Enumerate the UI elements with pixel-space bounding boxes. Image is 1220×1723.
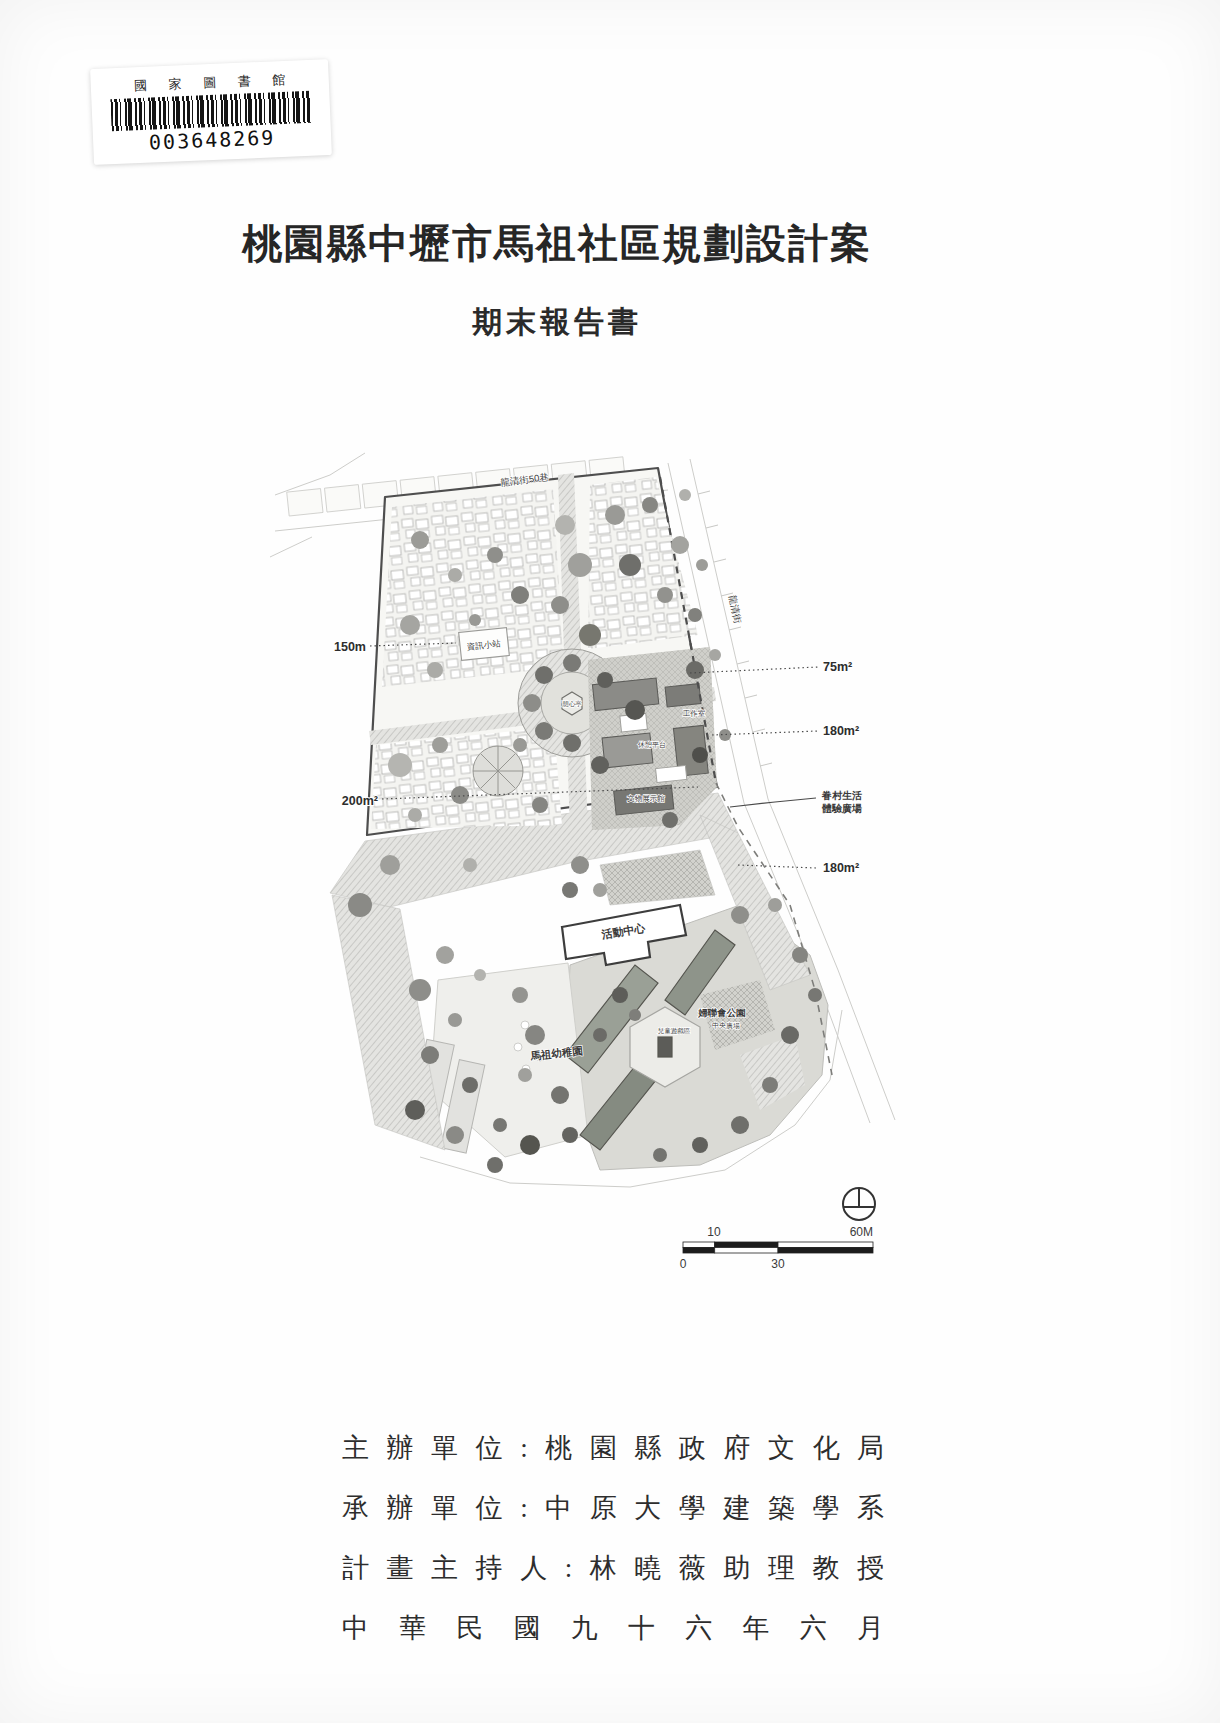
dim-180m-lower: 180m² (823, 861, 859, 875)
scale-tick-30: 30 (771, 1257, 785, 1271)
director-line: 計畫主持人:林曉薇助理教授 (342, 1538, 884, 1598)
scale-bar: 10 60M 0 30 (680, 1225, 873, 1271)
organizer-line: 主辦單位:桃園縣政府文化局 (342, 1418, 884, 1478)
barcode-icon (110, 91, 311, 131)
site-plan-svg: 龍清街50巷 龍清街 150m 200m² 75m² 180m² 180m² 眷… (270, 435, 920, 1295)
dim-150m: 150m (334, 640, 366, 654)
dim-200m: 200m² (342, 794, 378, 808)
label-workshop: 工作室 (683, 709, 706, 718)
page-subtitle: 期末報告書 (0, 302, 1114, 343)
date-line: 中華民國九十六年六月 (342, 1598, 884, 1658)
label-pavilion: 憩心亭 (561, 700, 582, 707)
library-barcode-sticker: 國 家 圖 書 館 003648269 (90, 59, 332, 165)
north-symbol-icon (843, 1188, 875, 1220)
label-rest-platform: 休憩平台 (638, 741, 666, 749)
dim-180m-upper: 180m² (823, 724, 859, 738)
label-village-plaza-1: 眷村生活 (821, 790, 862, 801)
site-plan-map: 龍清街50巷 龍清街 150m 200m² 75m² 180m² 180m² 眷… (270, 435, 920, 1295)
label-park: 婦聯會公園 (697, 1007, 746, 1018)
label-central-plaza: 中央廣場 (712, 1022, 740, 1030)
barcode-number: 003648269 (149, 125, 276, 154)
page-title: 桃園縣中壢市馬祖社區規劃設計案 (0, 216, 1114, 271)
play-structure (658, 1037, 672, 1057)
credits-block: 主辦單位:桃園縣政府文化局 承辦單位:中原大學建築學系 計畫主持人:林曉薇助理教… (342, 1418, 884, 1658)
dim-75m: 75m² (823, 660, 852, 674)
scale-tick-0: 0 (680, 1257, 687, 1271)
label-play-area: 兒童遊戲區 (658, 1027, 691, 1035)
scale-tick-60m: 60M (850, 1225, 873, 1239)
label-village-plaza-2: 體驗廣場 (821, 803, 862, 814)
label-exhibit-hall: 文物展示館 (627, 794, 665, 803)
street-label-right: 龍清街 (727, 594, 744, 625)
executor-line: 承辦單位:中原大學建築學系 (342, 1478, 884, 1538)
report-cover-page: 國 家 圖 書 館 003648269 桃園縣中壢市馬祖社區規劃設計案 期末報告… (0, 0, 1220, 1723)
scale-tick-10: 10 (707, 1225, 721, 1239)
